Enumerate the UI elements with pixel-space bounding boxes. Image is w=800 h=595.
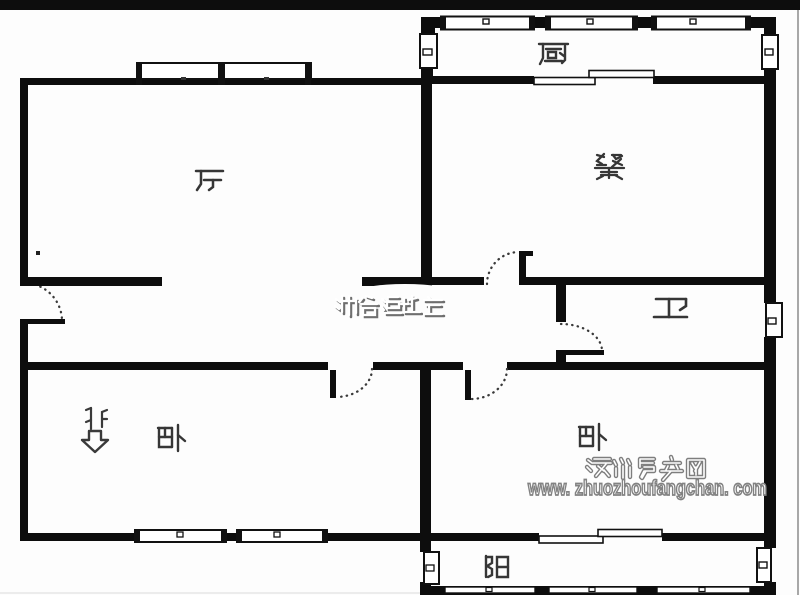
svg-text:www. zhuozhoufangchan. com: www. zhuozhoufangchan. com	[527, 477, 767, 500]
